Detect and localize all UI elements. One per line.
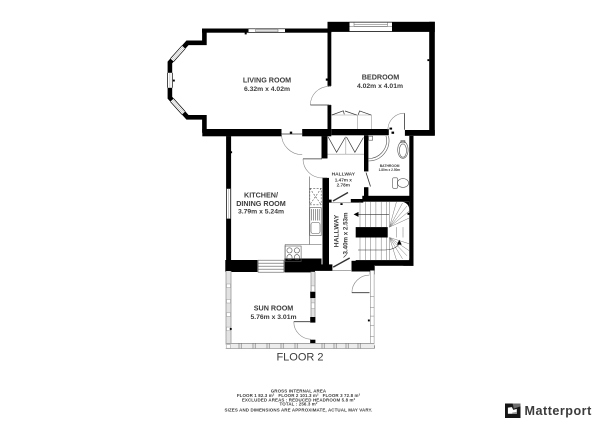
svg-text:TOTAL : 256.3 m²: TOTAL : 256.3 m² [280,402,318,407]
svg-text:3.79m x 5.24m: 3.79m x 5.24m [238,209,284,216]
svg-text:2.78m: 2.78m [337,183,350,188]
svg-text:HALLWAY: HALLWAY [333,214,340,247]
svg-text:3.40m x 2.53m: 3.40m x 2.53m [342,212,349,254]
svg-text:1.80m x 2.50m: 1.80m x 2.50m [379,168,401,172]
svg-text:SIZES AND DIMENSIONS ARE APPRO: SIZES AND DIMENSIONS ARE APPROXIMATE, AC… [225,407,373,412]
svg-text:4.02m x 4.01m: 4.02m x 4.01m [357,83,403,90]
svg-text:Matterport: Matterport [525,404,593,418]
svg-text:5.76m x 3.01m: 5.76m x 3.01m [250,314,296,321]
svg-text:DINING ROOM: DINING ROOM [236,199,286,208]
svg-text:FLOOR 2: FLOOR 2 [276,352,323,364]
svg-text:BEDROOM: BEDROOM [362,73,400,82]
svg-text:6.32m x 4.02m: 6.32m x 4.02m [244,86,290,93]
svg-text:LIVING ROOM: LIVING ROOM [243,76,291,85]
svg-text:SUN ROOM: SUN ROOM [254,304,294,313]
